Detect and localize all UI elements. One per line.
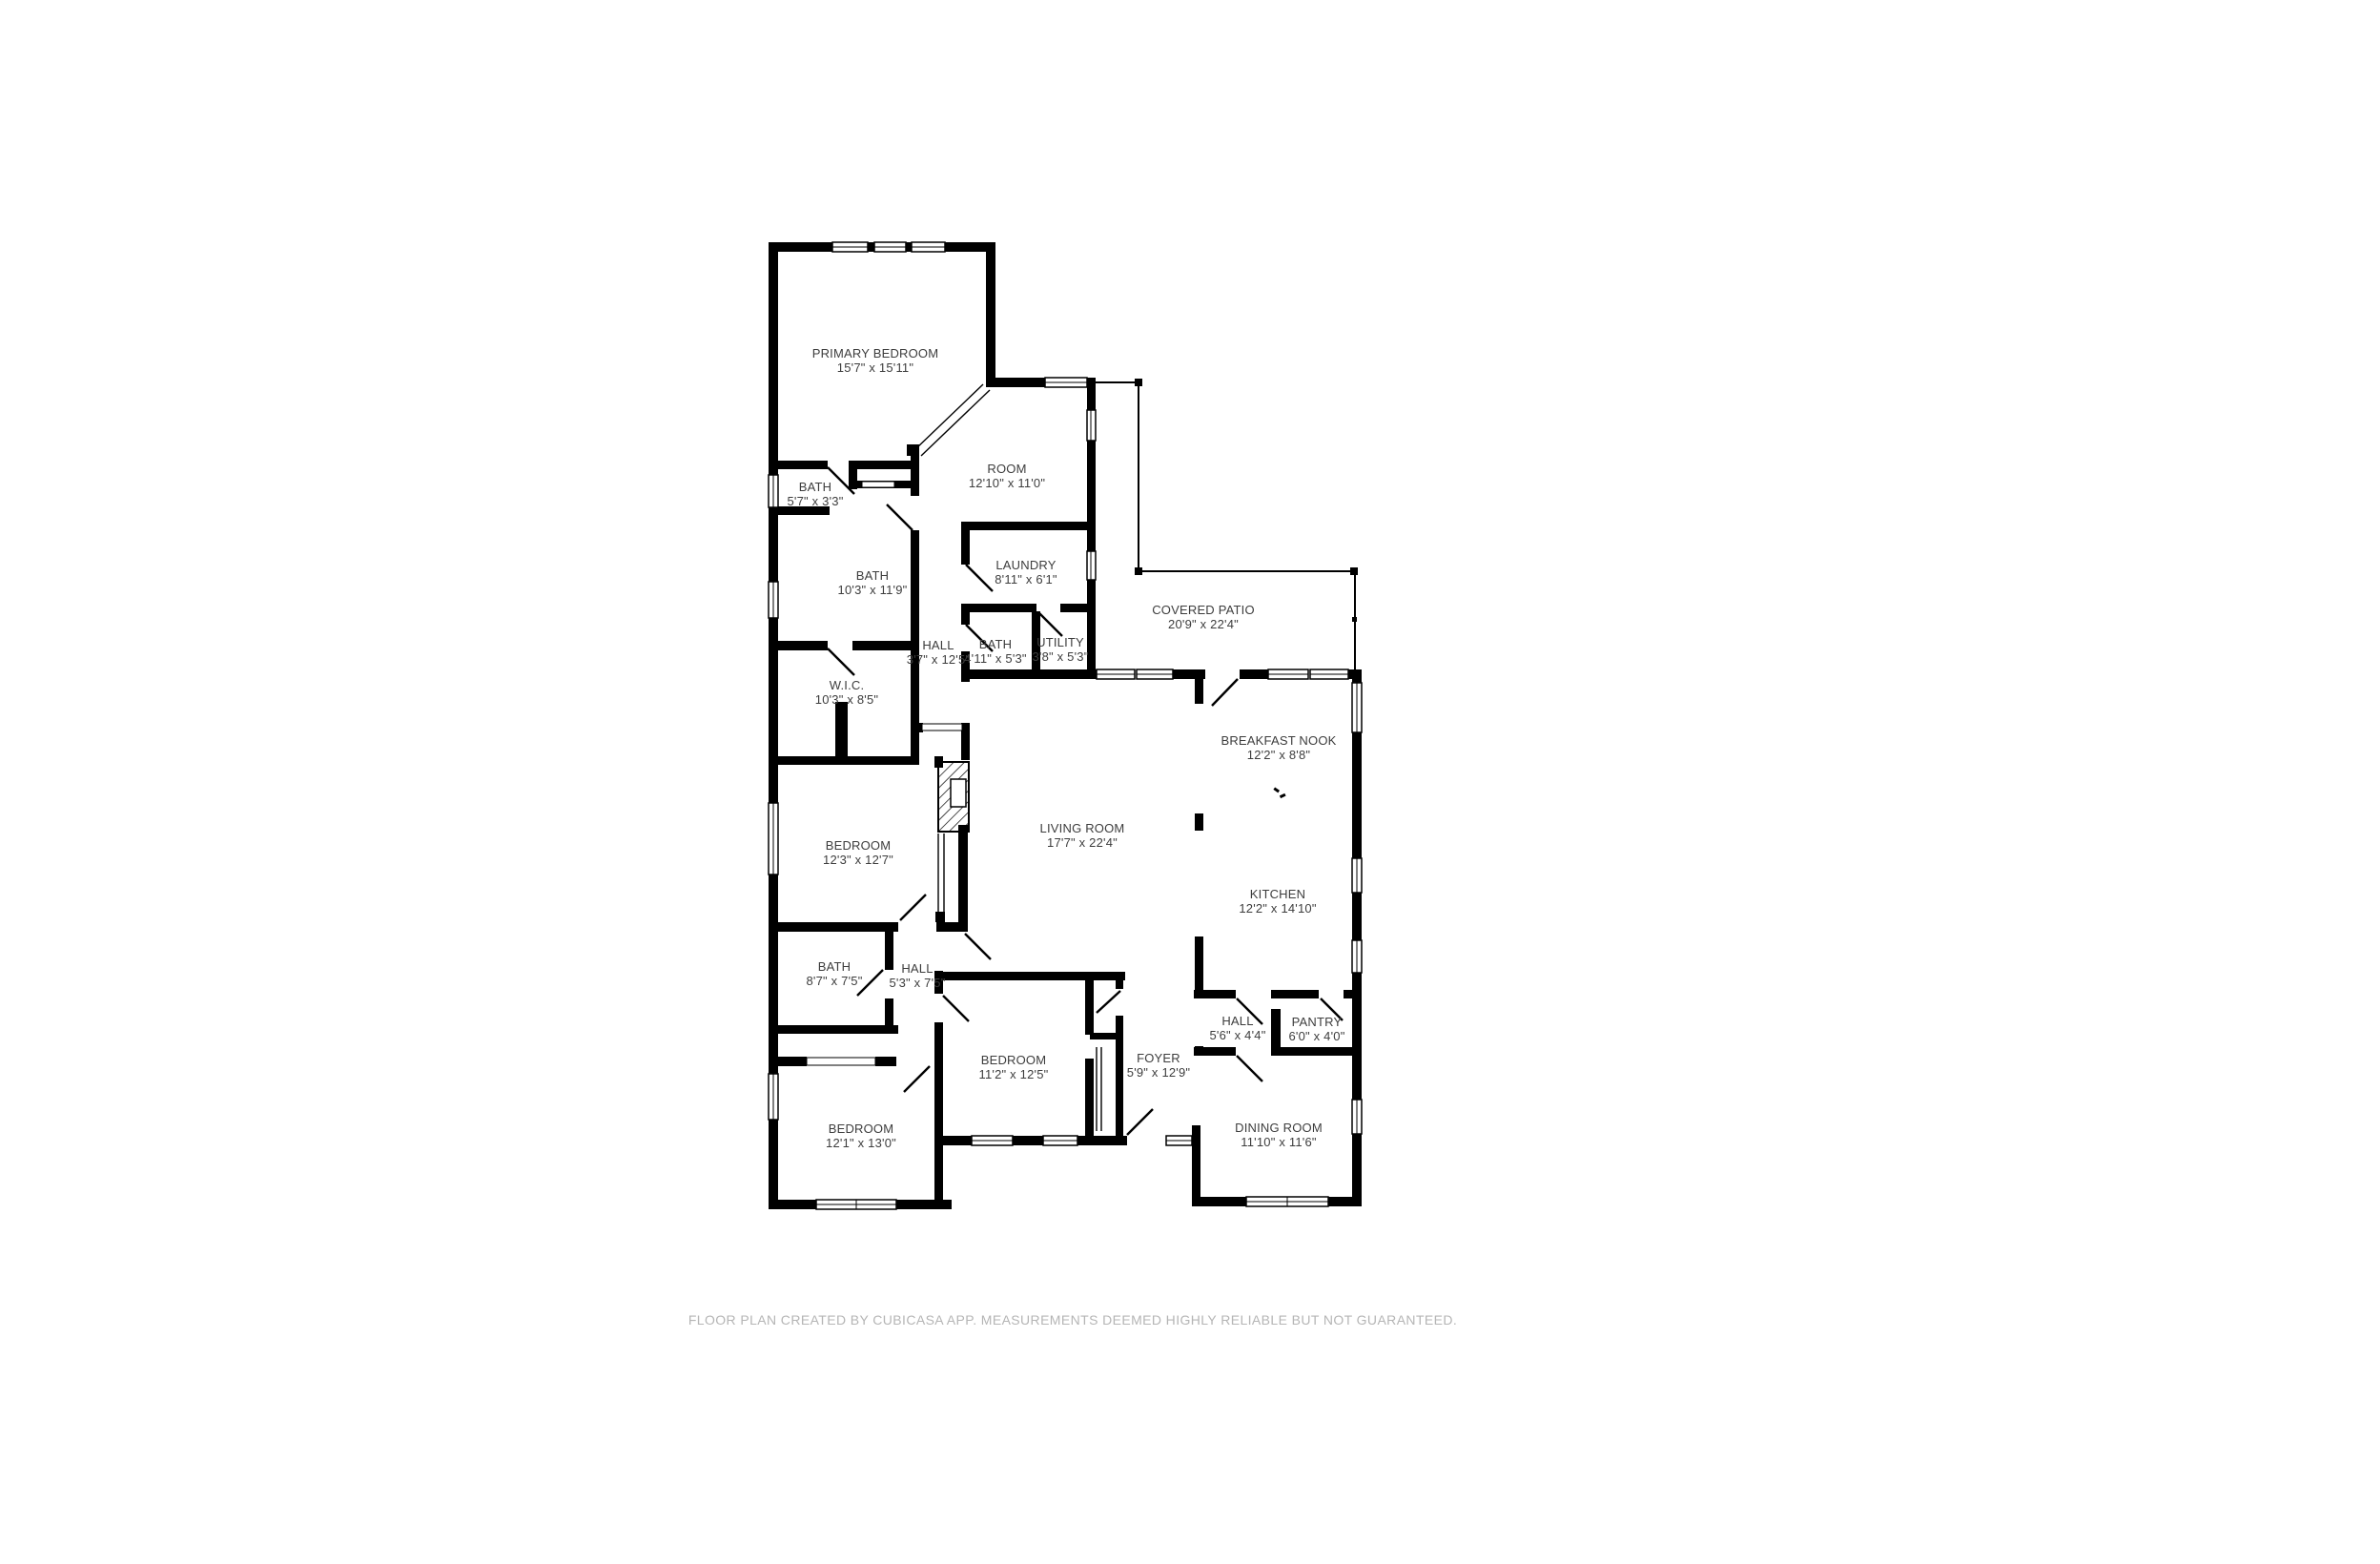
- room-dims: 10'3" x 8'5": [815, 692, 878, 707]
- room-name: BATH: [799, 480, 832, 494]
- room-label-wic: W.I.C. 10'3" x 8'5": [815, 678, 878, 707]
- room-label-dining-room: DINING ROOM 11'10" x 11'6": [1235, 1121, 1323, 1149]
- room-label-room: ROOM 12'10" x 11'0": [969, 462, 1045, 490]
- room-label-hall-lower: HALL 5'3" x 7'5": [889, 961, 945, 990]
- room-dims: 4'11" x 5'3": [964, 651, 1027, 666]
- room-label-hall-upper: HALL 3'7" x 12'5": [907, 638, 970, 667]
- room-name: KITCHEN: [1250, 887, 1305, 901]
- room-dims: 3'7" x 12'5": [907, 652, 970, 667]
- room-label-pantry: PANTRY 6'0" x 4'0": [1288, 1015, 1344, 1043]
- room-name: BEDROOM: [829, 1122, 894, 1136]
- room-name: PANTRY: [1292, 1015, 1343, 1029]
- room-dims: 12'10" x 11'0": [969, 476, 1045, 490]
- room-label-kitchen: KITCHEN 12'2" x 14'10": [1239, 887, 1316, 916]
- room-name: ROOM: [987, 462, 1026, 476]
- room-name: W.I.C.: [830, 678, 865, 692]
- room-dims: 3'8" x 5'3": [1032, 649, 1088, 664]
- room-name: BATH: [818, 959, 851, 974]
- room-dims: 12'2" x 8'8": [1247, 748, 1310, 762]
- room-dims: 12'2" x 14'10": [1239, 901, 1316, 916]
- room-name: BEDROOM: [826, 838, 892, 853]
- diagonal-wall: [907, 384, 990, 456]
- room-name: UTILITY: [1036, 635, 1084, 649]
- room-name: BEDROOM: [981, 1053, 1047, 1067]
- room-label-covered-patio: COVERED PATIO 20'9" x 22'4": [1152, 603, 1255, 631]
- footer-disclaimer: FLOOR PLAN CREATED BY CUBICASA APP. MEAS…: [688, 1312, 1457, 1327]
- room-dims: 6'0" x 4'0": [1288, 1029, 1344, 1043]
- room-label-bath-lower: BATH 8'7" x 7'5": [806, 959, 862, 988]
- floor-plan-drawing: [0, 0, 2380, 1564]
- room-dims: 12'3" x 12'7": [823, 853, 893, 867]
- room-label-living-room: LIVING ROOM 17'7" x 22'4": [1040, 821, 1125, 850]
- room-dims: 5'3" x 7'5": [889, 976, 945, 990]
- room-label-bath-small: BATH 5'7" x 3'3": [787, 480, 843, 508]
- room-label-bedroom-right: BEDROOM 11'2" x 12'5": [979, 1053, 1049, 1081]
- room-dims: 10'3" x 11'9": [838, 583, 908, 597]
- room-dims: 11'10" x 11'6": [1241, 1135, 1316, 1149]
- room-label-primary-bedroom: PRIMARY BEDROOM 15'7" x 15'11": [812, 346, 939, 375]
- room-name: BATH: [979, 637, 1013, 651]
- room-label-foyer: FOYER 5'9" x 12'9": [1127, 1051, 1190, 1080]
- room-name: LAUNDRY: [995, 558, 1056, 572]
- room-label-bedroom-bottom: BEDROOM 12'1" x 13'0": [826, 1122, 896, 1150]
- room-dims: 20'9" x 22'4": [1168, 617, 1239, 631]
- room-dims: 17'7" x 22'4": [1047, 835, 1118, 850]
- room-label-laundry: LAUNDRY 8'11" x 6'1": [995, 558, 1057, 586]
- room-name: LIVING ROOM: [1040, 821, 1125, 835]
- room-name: DINING ROOM: [1235, 1121, 1323, 1135]
- room-dims: 5'6" x 4'4": [1209, 1028, 1265, 1042]
- room-name: HALL: [922, 638, 954, 652]
- room-dims: 8'11" x 6'1": [995, 572, 1057, 586]
- room-name: HALL: [901, 961, 933, 976]
- room-label-bedroom-mid: BEDROOM 12'3" x 12'7": [823, 838, 893, 867]
- room-name: COVERED PATIO: [1152, 603, 1255, 617]
- room-name: BREAKFAST NOOK: [1221, 733, 1336, 748]
- room-dims: 8'7" x 7'5": [806, 974, 862, 988]
- room-dims: 15'7" x 15'11": [837, 360, 913, 375]
- room-label-utility: UTILITY 3'8" x 5'3": [1032, 635, 1088, 664]
- room-label-hall-kitchen: HALL 5'6" x 4'4": [1209, 1014, 1265, 1042]
- room-dims: 5'9" x 12'9": [1127, 1065, 1190, 1080]
- room-label-bath-hall: BATH 4'11" x 5'3": [964, 637, 1027, 666]
- room-dims: 11'2" x 12'5": [979, 1067, 1049, 1081]
- room-name: FOYER: [1137, 1051, 1180, 1065]
- floor-plan-page: PRIMARY BEDROOM 15'7" x 15'11" BATH 5'7"…: [0, 0, 2380, 1564]
- room-dims: 5'7" x 3'3": [787, 494, 843, 508]
- room-name: BATH: [856, 568, 890, 583]
- fireplace-icon: [938, 762, 969, 832]
- room-name: PRIMARY BEDROOM: [812, 346, 939, 360]
- room-dims: 12'1" x 13'0": [826, 1136, 896, 1150]
- room-label-breakfast-nook: BREAKFAST NOOK 12'2" x 8'8": [1221, 733, 1336, 762]
- fixture-marks: [1273, 787, 1285, 798]
- room-name: HALL: [1221, 1014, 1253, 1028]
- room-label-bath-primary: BATH 10'3" x 11'9": [838, 568, 908, 597]
